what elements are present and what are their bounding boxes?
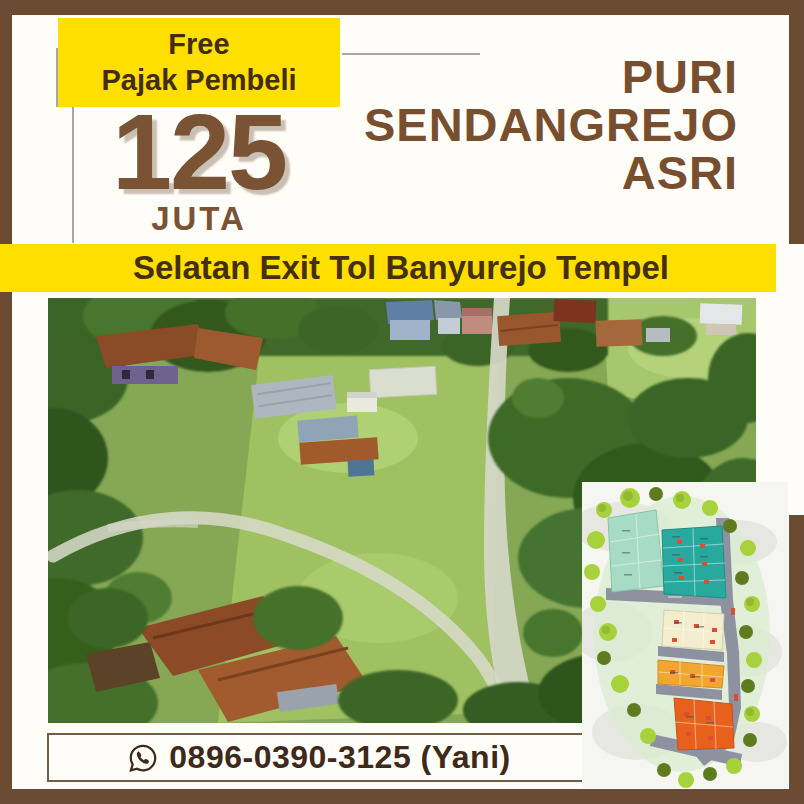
badge-line-1: Free [168,27,229,62]
frame-border-bottom [0,789,804,804]
whatsapp-icon [126,741,160,775]
phone-number: 0896-0390-3125 (Yani) [169,739,510,776]
site-plan-inset [582,482,788,788]
project-title: PURI SENDANGREJO ASRI [364,53,738,197]
price-unit: JUTA [58,200,340,238]
title-line-1: PURI [364,53,738,101]
block-mint [608,510,664,592]
frame-border-left [0,0,12,804]
location-banner-text: Selatan Exit Tol Banyurejo Tempel [133,249,669,287]
flyer-root: Free Pajak Pembeli 125 JUTA PURI SENDANG… [0,0,804,804]
title-line-3: ASRI [364,149,738,197]
price-amount: 125 [58,98,340,206]
frame-border-right-upper [789,0,804,244]
location-banner: Selatan Exit Tol Banyurejo Tempel [0,244,776,292]
concrete-pad [369,366,436,397]
frame-border-right-lower [789,515,804,804]
contact-bar[interactable]: 0896-0390-3125 (Yani) [47,733,590,782]
title-line-2: SENDANGREJO [364,101,738,149]
block-orange [674,698,734,750]
frame-border-top [0,0,804,15]
